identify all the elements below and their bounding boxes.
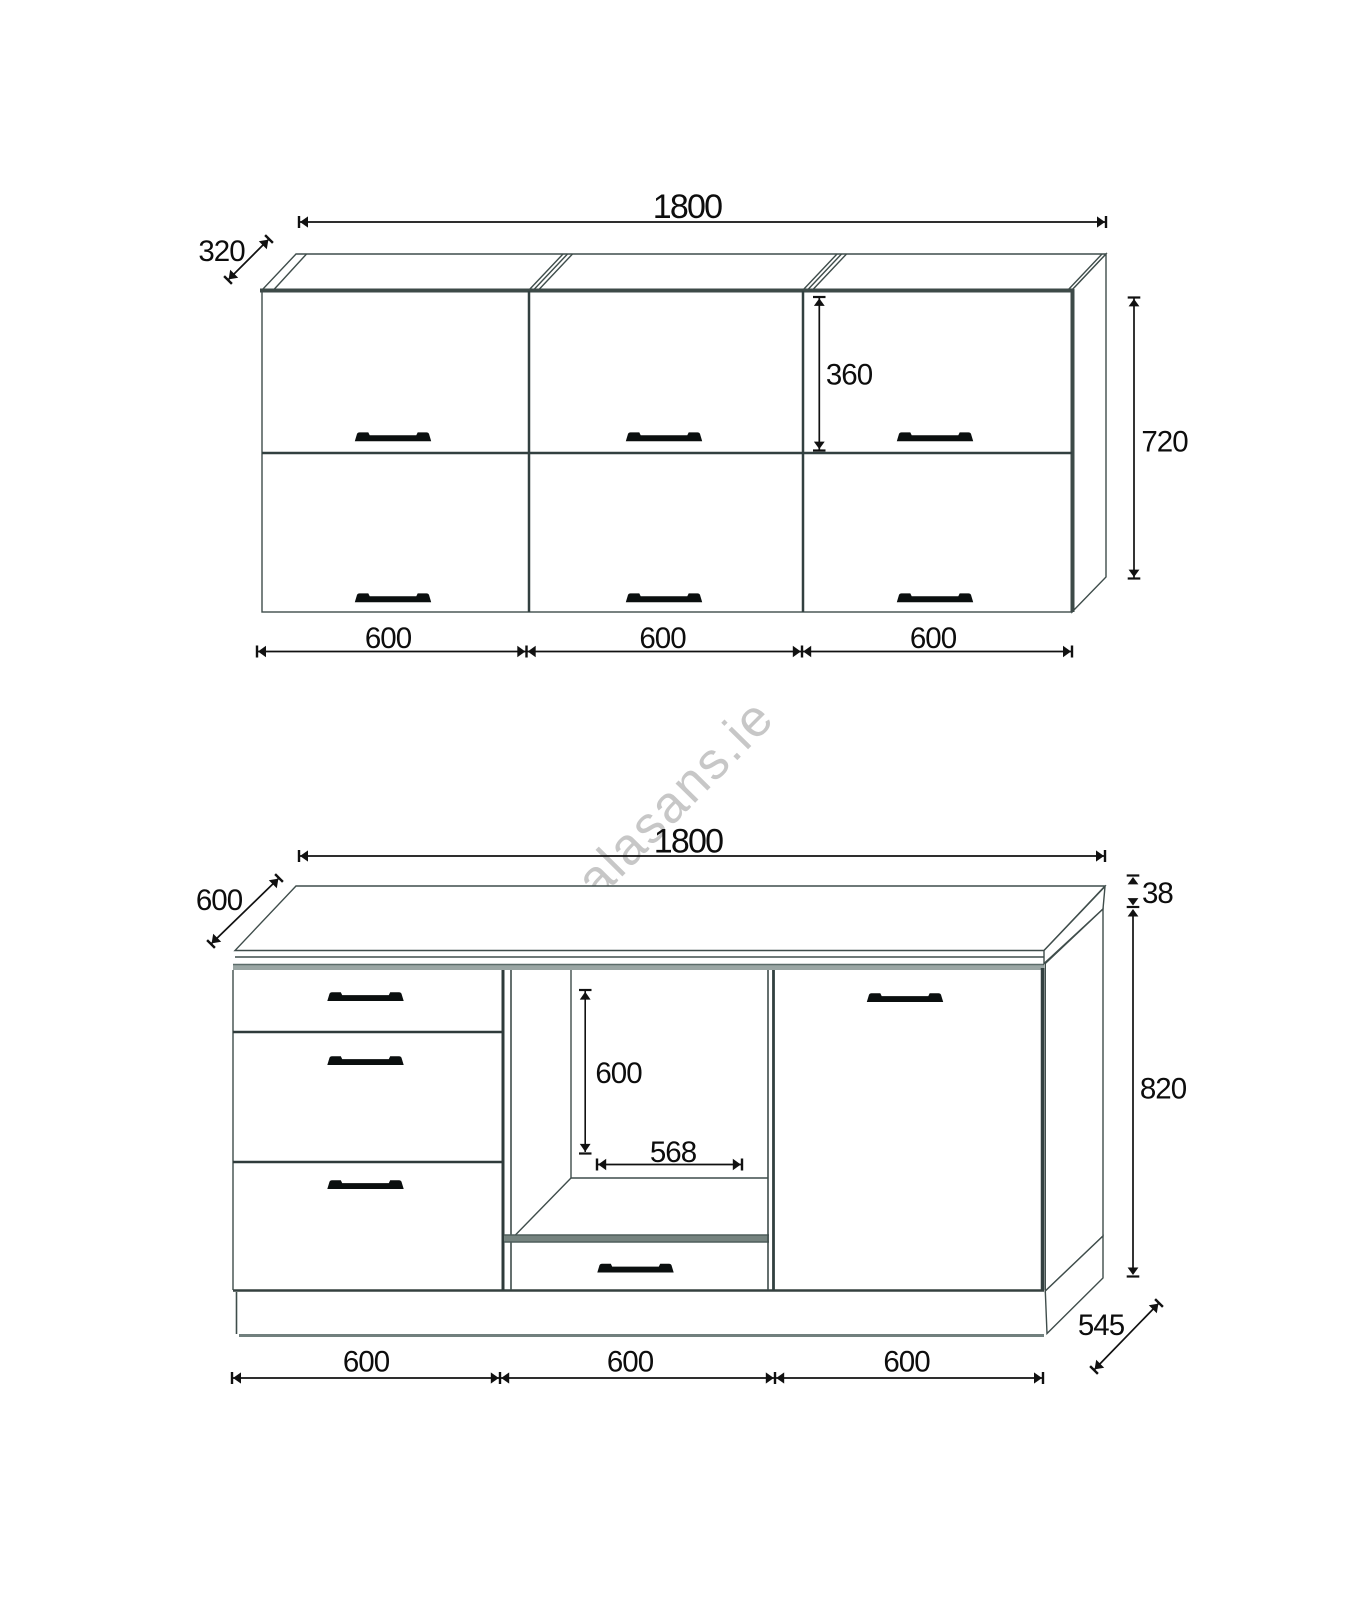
svg-text:720: 720 — [1141, 426, 1188, 459]
svg-text:alasans.ie: alasans.ie — [565, 688, 785, 909]
svg-text:1800: 1800 — [654, 823, 723, 861]
svg-text:320: 320 — [198, 235, 245, 268]
svg-text:360: 360 — [826, 359, 873, 392]
svg-text:600: 600 — [910, 622, 957, 655]
svg-text:600: 600 — [607, 1346, 654, 1379]
svg-text:600: 600 — [595, 1057, 642, 1090]
svg-text:545: 545 — [1078, 1309, 1125, 1342]
svg-text:38: 38 — [1142, 877, 1173, 910]
svg-text:820: 820 — [1140, 1073, 1187, 1106]
svg-text:568: 568 — [650, 1136, 697, 1169]
svg-text:600: 600 — [196, 884, 243, 917]
svg-text:1800: 1800 — [653, 188, 722, 226]
svg-text:600: 600 — [883, 1346, 930, 1379]
svg-text:600: 600 — [639, 622, 686, 655]
svg-text:600: 600 — [365, 622, 412, 655]
svg-text:600: 600 — [343, 1346, 390, 1379]
